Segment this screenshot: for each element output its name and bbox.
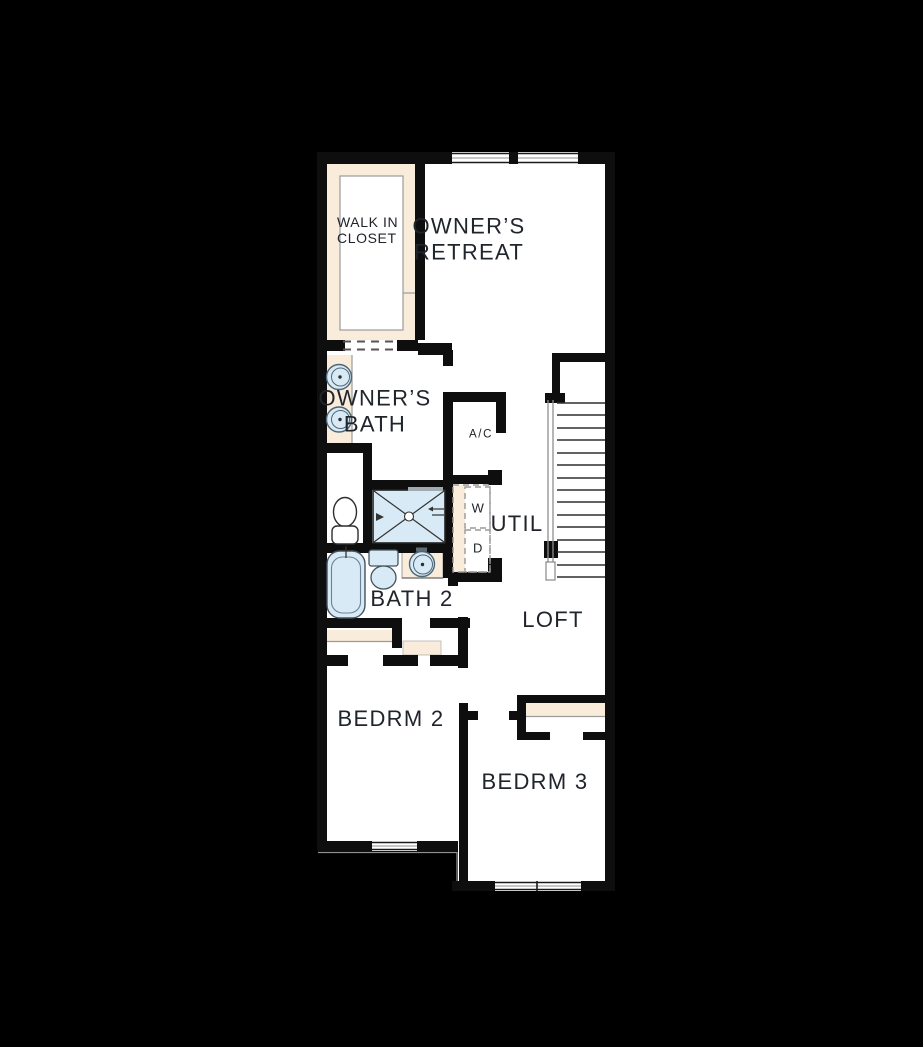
stair-rail-foot — [546, 562, 555, 580]
bathtub-icon — [327, 546, 365, 618]
owner-sink-icon — [327, 365, 352, 390]
bedrm2-window — [372, 841, 417, 851]
bedrm3-window — [495, 881, 581, 891]
utility-cabinet — [453, 485, 465, 572]
retreat-window — [452, 152, 578, 164]
floorplan-drawing — [0, 0, 923, 1047]
owner-sink-icon — [327, 407, 352, 432]
owner-toilet-icon — [332, 498, 358, 545]
floorplan-canvas: WALK IN CLOSET OWNER’S RETREAT OWNER’S B… — [0, 0, 923, 1047]
walk-in-closet-casework — [327, 164, 415, 340]
first-floor-outline — [318, 853, 457, 882]
shower-icon — [373, 489, 445, 543]
